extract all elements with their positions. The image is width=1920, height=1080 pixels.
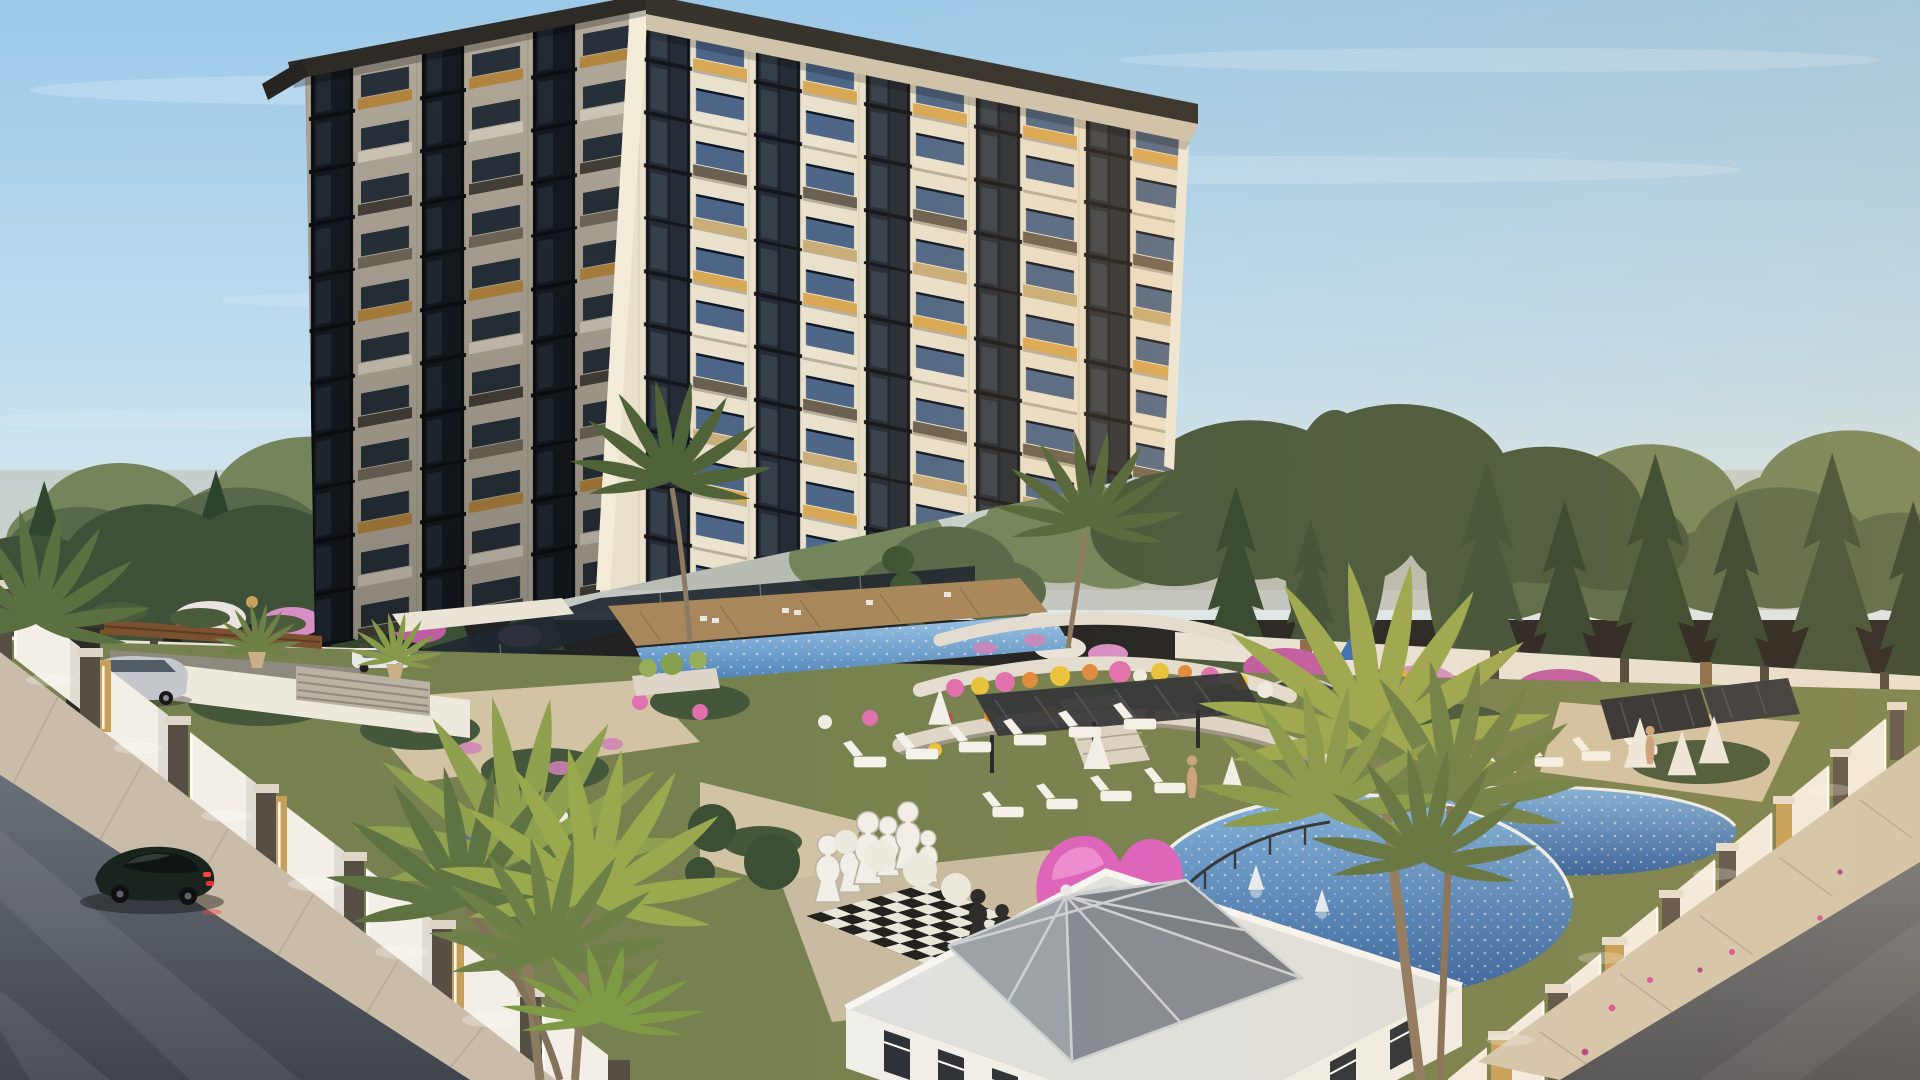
sunset-light-overlay <box>0 0 1920 1080</box>
render-canvas <box>0 0 1920 1080</box>
